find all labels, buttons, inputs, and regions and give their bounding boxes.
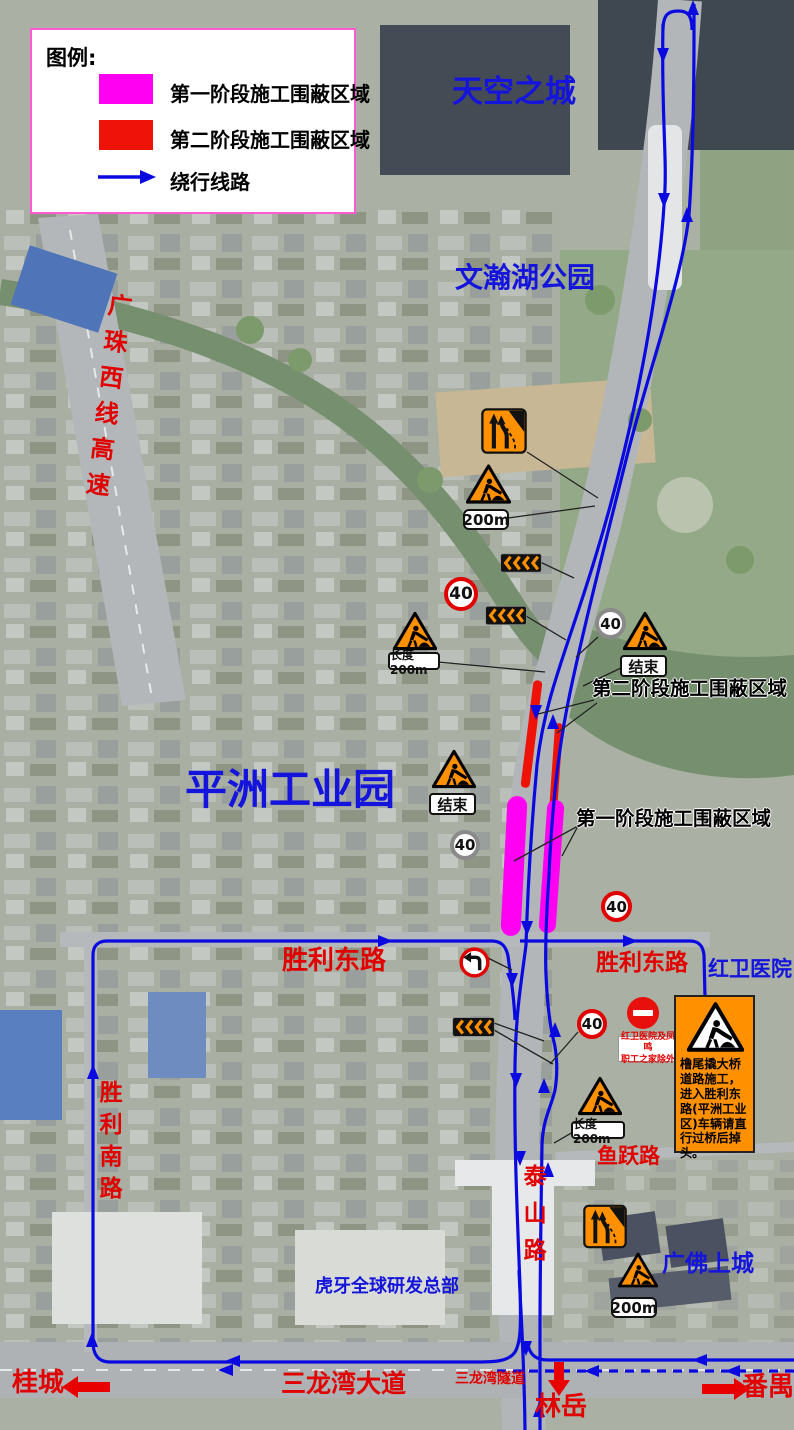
- length-200m-sign-2: 长度200m: [571, 1121, 625, 1139]
- panyu-right-arrow: [702, 1378, 750, 1400]
- speed-limit-40-sign-1: 40: [444, 577, 478, 611]
- linyue-down-arrow: [548, 1362, 570, 1396]
- legend-route-arrow: [96, 166, 158, 188]
- label-wenhan-lake-park: 文瀚湖公园: [455, 263, 595, 292]
- route-and-zone-overlay: [0, 0, 794, 1430]
- no-entry-sign: [627, 997, 659, 1029]
- roadwork-sign-4: [432, 748, 476, 790]
- callout-phase1-zone: 第一阶段施工围蔽区域: [576, 809, 771, 829]
- legend-route-label: 绕行线路: [170, 166, 250, 195]
- label-shengli-south-road: 胜利南路: [96, 1080, 120, 1208]
- no-entry-exception-note: 红卫医院及凤鸣 职工之家除外: [618, 1036, 678, 1062]
- callout-phase2-zone: 第二阶段施工围蔽区域: [592, 679, 787, 699]
- roadwork-sign-3: [623, 610, 667, 652]
- lane-merge-sign-north: [481, 408, 527, 454]
- roadwork-sign-6: [618, 1250, 658, 1290]
- label-taishan-road: 泰山路: [520, 1164, 544, 1275]
- guicheng-left-arrow: [62, 1376, 110, 1398]
- distance-200m-sign-south: 200m: [611, 1297, 657, 1318]
- legend-phase2-label: 第二阶段施工围蔽区域: [170, 124, 370, 153]
- notice-board-text: 橹尾撬大桥道路施工，进入胜利东路(平洲工业区)车辆请直行过桥后掉头。: [680, 1057, 750, 1161]
- legend-phase2-swatch: [99, 120, 153, 150]
- lane-merge-sign-south: [583, 1204, 627, 1249]
- roadwork-sign-5: [578, 1075, 622, 1117]
- label-pingzhou-industrial-park: 平洲工业园: [185, 768, 395, 812]
- chevron-sign-3: [452, 1014, 495, 1040]
- label-yuyue-road: 鱼跃路: [597, 1145, 660, 1167]
- speed-limit-40-sign-2: 40: [601, 891, 632, 922]
- legend-title: 图例:: [46, 42, 96, 72]
- chevron-sign-1: [500, 550, 542, 576]
- label-sanlongwan-avenue: 三龙湾大道: [281, 1371, 406, 1397]
- no-left-turn-sign: [459, 947, 490, 978]
- label-guangfo-shangcheng: 广佛上城: [662, 1252, 754, 1276]
- end-sign-1: 结束: [620, 655, 667, 677]
- label-guicheng: 桂城: [12, 1370, 64, 1397]
- legend-phase1-swatch: [99, 74, 153, 104]
- legend: 图例: 第一阶段施工围蔽区域 第二阶段施工围蔽区域 绕行线路: [30, 28, 356, 214]
- label-huya-hq: 虎牙全球研发总部: [315, 1278, 459, 1297]
- construction-detour-map[interactable]: 200m 40 长度200m 40 结束 结束 40 40 40 红卫医院及凤鸣…: [0, 0, 794, 1430]
- label-linyue: 林岳: [535, 1394, 587, 1421]
- exception-line-1: 红卫医院及凤鸣: [619, 1032, 677, 1055]
- label-sanlongwan-tunnel: 三龙湾隧道: [455, 1372, 525, 1387]
- legend-phase1-label: 第一阶段施工围蔽区域: [170, 78, 370, 107]
- label-shengli-east-road-east: 胜利东路: [596, 951, 688, 975]
- speed-limit-40-sign-3: 40: [577, 1009, 607, 1039]
- exception-line-2: 职工之家除外: [619, 1055, 677, 1066]
- chevron-sign-2: [485, 603, 527, 628]
- construction-notice-board: 橹尾撬大桥道路施工，进入胜利东路(平洲工业区)车辆请直行过桥后掉头。: [674, 995, 755, 1153]
- roadwork-board-icon: [687, 1000, 744, 1054]
- end-sign-2: 结束: [429, 793, 476, 815]
- length-200m-sign-1: 长度200m: [388, 652, 440, 670]
- roadwork-sign-1: [466, 463, 511, 505]
- speed-limit-end-40-sign-2: 40: [450, 830, 480, 860]
- label-hongwei-hospital: 红卫医院: [708, 958, 792, 980]
- distance-200m-sign-north: 200m: [463, 509, 509, 530]
- speed-limit-end-40-sign-1: 40: [595, 608, 626, 639]
- label-sky-city: 天空之城: [452, 76, 576, 109]
- label-shengli-east-road-west: 胜利东路: [282, 948, 386, 975]
